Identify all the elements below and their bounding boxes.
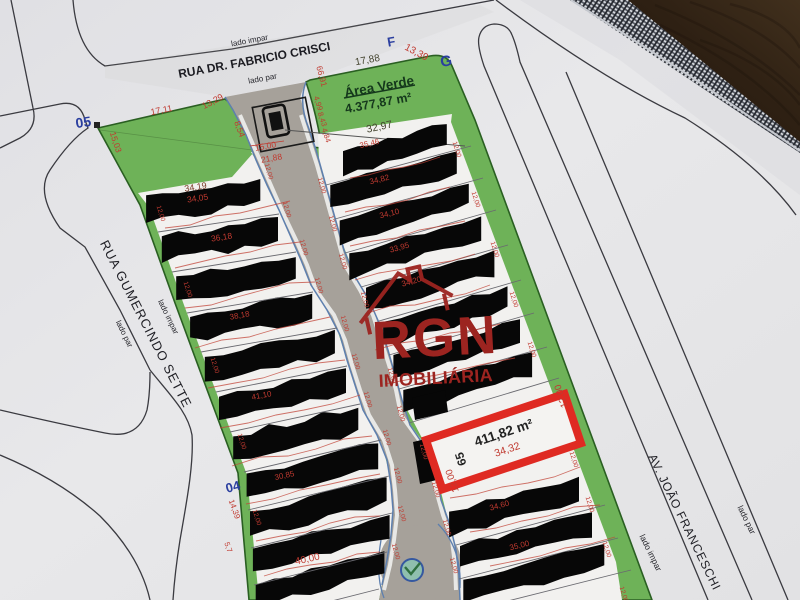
svg-text:RGN: RGN bbox=[371, 305, 500, 372]
svg-text:05: 05 bbox=[74, 113, 92, 131]
